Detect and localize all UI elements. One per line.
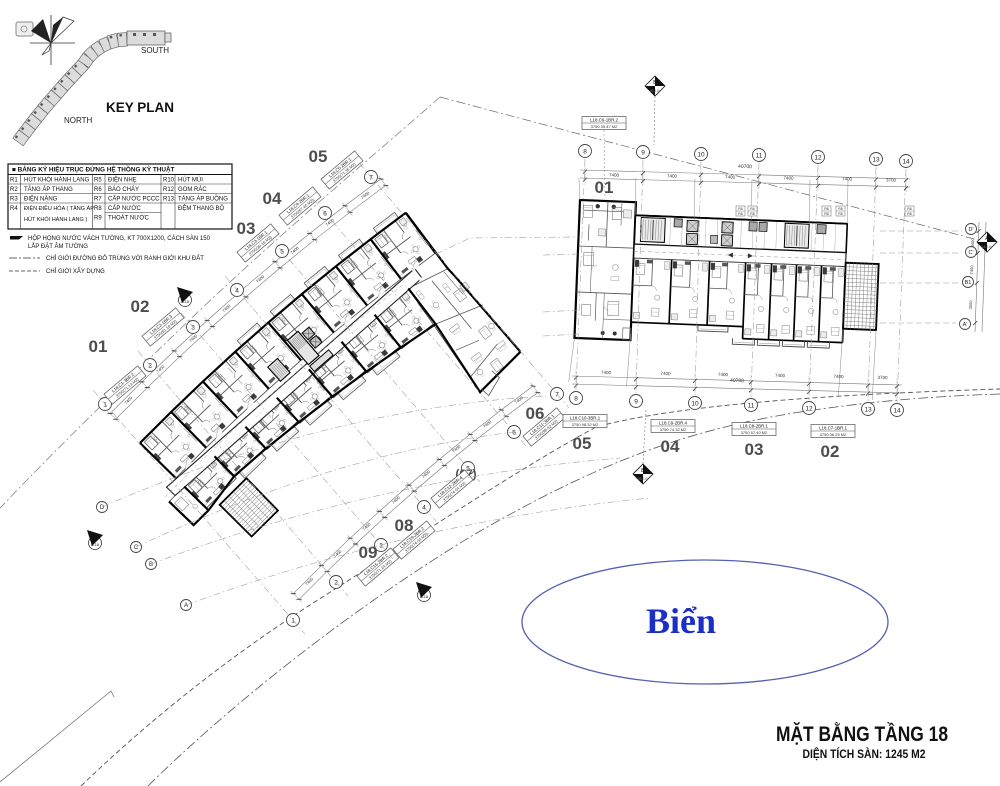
svg-text:7400: 7400: [718, 372, 729, 377]
svg-text:NORTH: NORTH: [64, 116, 93, 125]
svg-text:08: 08: [395, 516, 414, 535]
svg-text:R9: R9: [94, 216, 102, 222]
svg-text:04: 04: [661, 437, 680, 456]
svg-text:4: 4: [422, 504, 426, 511]
svg-text:A: A: [184, 603, 188, 609]
svg-text:7400: 7400: [842, 176, 853, 181]
svg-text:01: 01: [595, 178, 614, 197]
svg-text:TĂNG ÁP BUỒNG: TĂNG ÁP BUỒNG: [178, 196, 228, 203]
svg-text:05: 05: [309, 147, 328, 166]
svg-text:3700: 3700: [877, 375, 888, 380]
svg-text:BÁO CHÁY: BÁO CHÁY: [108, 186, 139, 193]
svg-text:ĐỆM THANG BỘ: ĐỆM THANG BỘ: [178, 204, 225, 212]
svg-text:8: 8: [583, 148, 587, 155]
svg-text:R8: R8: [94, 206, 102, 212]
svg-text:3700: 3700: [886, 177, 897, 182]
svg-text:7: 7: [555, 391, 559, 398]
svg-text:(B-18): (B-18): [650, 89, 660, 93]
svg-text:KEY PLAN: KEY PLAN: [106, 100, 174, 115]
svg-text:A-18: A-18: [181, 300, 189, 304]
svg-text:7400: 7400: [775, 373, 786, 378]
svg-text:R8: R8: [750, 212, 755, 216]
svg-text:A': A': [963, 322, 968, 328]
svg-text:R6: R6: [838, 207, 843, 211]
svg-text:7400: 7400: [667, 173, 678, 178]
svg-text:L18.C6-1BR.2: L18.C6-1BR.2: [590, 117, 618, 122]
svg-text:CẤP NƯỚC: CẤP NƯỚC: [108, 205, 141, 212]
svg-text:A-18: A-18: [91, 543, 99, 547]
svg-text:CHỈ GIỚI ĐƯỜNG ĐỎ TRÙNG VỚI RA: CHỈ GIỚI ĐƯỜNG ĐỎ TRÙNG VỚI RANH GIỚI KH…: [46, 255, 204, 262]
svg-text:02: 02: [821, 442, 840, 461]
svg-text:R5: R5: [94, 178, 102, 184]
svg-text:R10: R10: [163, 178, 175, 184]
svg-text:3: 3: [379, 542, 383, 549]
svg-text:B: B: [641, 468, 645, 474]
svg-text:R7: R7: [94, 197, 102, 203]
svg-text:R6: R6: [907, 207, 912, 211]
svg-text:L18.C10-3BR.1: L18.C10-3BR.1: [570, 415, 601, 420]
svg-text:7400: 7400: [660, 371, 671, 376]
svg-text:10: 10: [691, 400, 699, 407]
svg-text:05: 05: [573, 434, 592, 453]
svg-text:L18.C7-1BR.1: L18.C7-1BR.1: [819, 425, 847, 430]
svg-text:B: B: [149, 562, 153, 568]
svg-text:3750 36.25 M2: 3750 36.25 M2: [820, 432, 847, 437]
svg-text:R6: R6: [94, 187, 102, 193]
svg-text:ĐIỆN ĐIỀU HÒA ( TĂNG ÁP: ĐIỆN ĐIỀU HÒA ( TĂNG ÁP: [24, 204, 94, 212]
svg-text:14: 14: [893, 407, 901, 414]
svg-text:R2: R2: [10, 187, 18, 193]
svg-text:04: 04: [263, 189, 282, 208]
svg-text:13: 13: [872, 156, 880, 163]
svg-text:DIỆN TÍCH SÀN: 1245 M2: DIỆN TÍCH SÀN: 1245 M2: [803, 748, 926, 761]
svg-text:7400: 7400: [783, 175, 794, 180]
svg-text:CHỈ GIỚI XÂY DỰNG: CHỈ GIỚI XÂY DỰNG: [46, 268, 105, 275]
svg-text:03: 03: [237, 219, 256, 238]
svg-text:11: 11: [756, 152, 763, 159]
svg-text:40700: 40700: [730, 378, 744, 384]
svg-text:R8: R8: [907, 212, 912, 216]
svg-text:HÚT MÙI: HÚT MÙI: [178, 177, 203, 184]
svg-text:01: 01: [89, 337, 108, 356]
svg-text:TĂNG ÁP THANG: TĂNG ÁP THANG: [24, 186, 73, 193]
svg-text:ĐIỆN NHẸ: ĐIỆN NHẸ: [108, 176, 137, 184]
svg-text:3400: 3400: [970, 238, 975, 248]
svg-text:LẮP ĐẶT ÂM TƯỜNG: LẮP ĐẶT ÂM TƯỜNG: [28, 242, 88, 250]
svg-text:ĐIỆN NẶNG: ĐIỆN NẶNG: [24, 195, 58, 203]
svg-text:R6: R6: [824, 207, 829, 211]
svg-text:B1: B1: [965, 280, 972, 286]
svg-text:R13: R13: [163, 197, 175, 203]
svg-text:3000: 3000: [968, 300, 973, 310]
svg-text:7400: 7400: [833, 374, 844, 379]
svg-text:2: 2: [334, 579, 338, 586]
svg-text:(B-18): (B-18): [638, 477, 648, 481]
svg-text:A: A: [985, 236, 989, 242]
svg-text:3750 35.47 M2: 3750 35.47 M2: [591, 124, 618, 129]
svg-text:9: 9: [641, 149, 645, 156]
svg-text:CẤP NƯỚC PCCC: CẤP NƯỚC PCCC: [108, 196, 160, 203]
svg-text:L18.C9-2BR.4: L18.C9-2BR.4: [659, 420, 687, 425]
svg-text:7400: 7400: [725, 174, 736, 179]
svg-text:D': D': [968, 227, 973, 233]
svg-text:R6: R6: [750, 207, 755, 211]
svg-text:8: 8: [574, 395, 578, 402]
svg-text:02: 02: [131, 297, 150, 316]
svg-text:HÚT KHÓI HÀNH LANG: HÚT KHÓI HÀNH LANG: [24, 177, 90, 184]
svg-text:3750 98.32 M2: 3750 98.32 M2: [572, 422, 599, 427]
svg-text:9: 9: [634, 398, 638, 405]
svg-text:R8: R8: [824, 212, 829, 216]
svg-text:R1: R1: [10, 178, 18, 184]
svg-text:MẶT BẰNG TẦNG 18: MẶT BẰNG TẦNG 18: [776, 722, 948, 746]
svg-text:7400: 7400: [609, 172, 620, 177]
svg-text:09: 09: [359, 543, 378, 562]
svg-text:SOUTH: SOUTH: [141, 46, 169, 55]
svg-text:10: 10: [697, 151, 705, 158]
svg-text:13: 13: [864, 406, 872, 413]
svg-text:R8: R8: [738, 212, 743, 216]
svg-text:7400: 7400: [601, 370, 612, 375]
svg-text:GOM RÁC: GOM RÁC: [178, 186, 207, 193]
svg-text:3750 57.40 M2: 3750 57.40 M2: [741, 430, 768, 435]
svg-text:40700: 40700: [738, 164, 752, 170]
svg-text:Biển: Biển: [646, 601, 716, 641]
svg-text:12: 12: [814, 154, 822, 161]
svg-text:7400: 7400: [969, 265, 974, 275]
svg-text:A-18: A-18: [420, 595, 428, 599]
svg-text:HÚT KHÓI HÀNH LANG ): HÚT KHÓI HÀNH LANG ): [24, 216, 87, 223]
svg-text:L18.C8-2BR.1: L18.C8-2BR.1: [740, 423, 768, 428]
svg-text:B: B: [653, 80, 657, 86]
svg-text:HỘP HỌNG NƯỚC VÁCH TƯỜNG, KT 7: HỘP HỌNG NƯỚC VÁCH TƯỜNG, KT 700X1200, C…: [28, 235, 211, 242]
svg-text:THOÁT NƯỚC: THOÁT NƯỚC: [108, 215, 149, 222]
svg-text:R4: R4: [10, 206, 18, 212]
svg-text:R12: R12: [163, 187, 175, 193]
svg-text:03: 03: [745, 440, 764, 459]
svg-text:(A-18): (A-18): [982, 245, 992, 249]
svg-text:14: 14: [902, 158, 910, 165]
svg-text:R3: R3: [10, 197, 18, 203]
svg-text:11: 11: [748, 402, 755, 409]
svg-text:3750 74.32 M2: 3750 74.32 M2: [660, 427, 687, 432]
svg-text:R8: R8: [838, 212, 843, 216]
svg-text:12: 12: [805, 405, 813, 412]
svg-text:R6: R6: [738, 207, 743, 211]
svg-text:C': C': [968, 250, 973, 256]
